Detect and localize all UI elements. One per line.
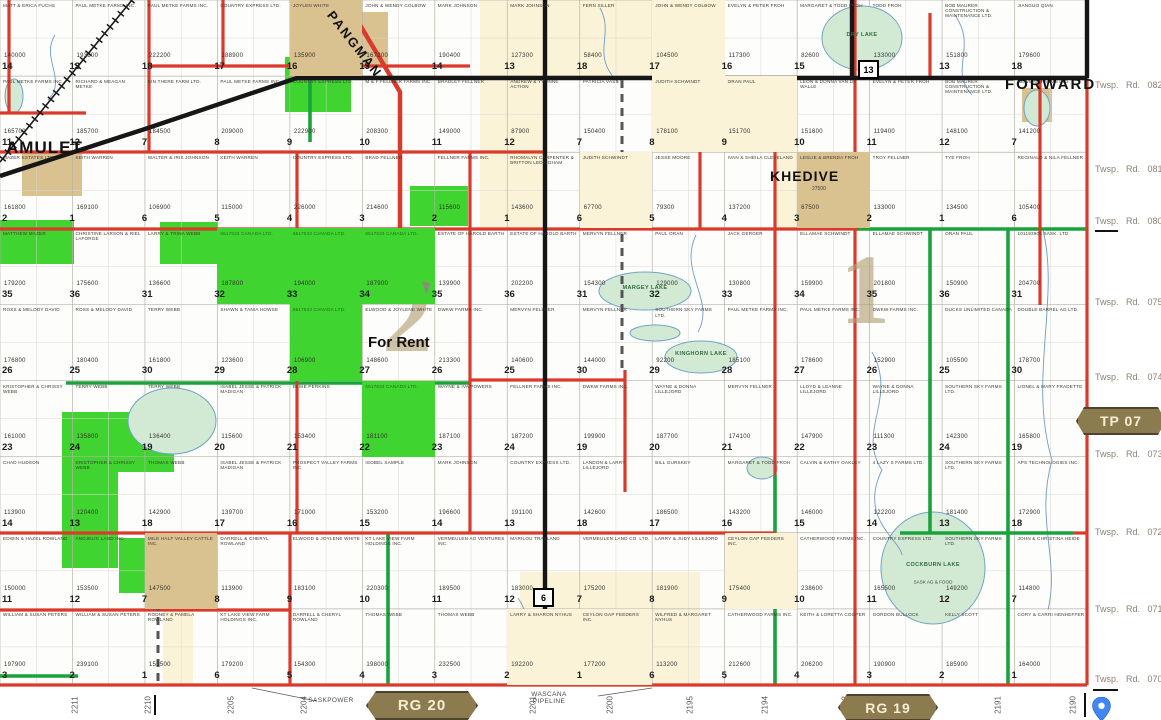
parcel-owner: TERRY WEBB <box>72 381 144 389</box>
parcel-value: 153400 <box>294 434 316 440</box>
parcel-value: 226000 <box>294 205 316 211</box>
parcel-owner: DOUBLE BARREL AG LTD. <box>1015 304 1087 312</box>
section-number: 16 <box>722 61 733 72</box>
parcel: TERRY WEBB135800 <box>72 381 144 457</box>
parcel: DARRELL & CHERYL ROWLAND154300 <box>290 609 362 685</box>
section-number: 27 <box>794 365 805 376</box>
parcel-value: 165800 <box>1019 434 1041 440</box>
section-number: 1 <box>69 213 74 224</box>
section-number: 12 <box>939 594 950 605</box>
parcel-value: 171000 <box>294 510 316 516</box>
parcel: PAUL METKE FARMS INC.209000 <box>217 76 289 152</box>
section-number: 1 <box>577 670 582 681</box>
parcel-owner: CHRISTINE LARSON & RIEL LAFORGE <box>72 228 144 241</box>
section-number: 2 <box>867 213 872 224</box>
parcel-owner: PAUL METKE FARMS INC. <box>217 76 289 84</box>
parcel-value: 176800 <box>4 358 26 364</box>
parcel-value: 222900 <box>294 129 316 135</box>
parcel-owner: DWKW FARMS INC. <box>580 381 652 389</box>
parcel-value: 151700 <box>729 129 751 135</box>
section-number: 11 <box>2 594 12 605</box>
parcel: BRAD FELLNER214600 <box>362 152 434 228</box>
section-number: 35 <box>2 289 13 300</box>
section-number: 13 <box>504 518 515 529</box>
parcel: ORAN PAUL150900 <box>942 228 1014 304</box>
parcel-owner: ESTATE OF HAROLD BARTH <box>507 228 579 236</box>
parcel-value: 161000 <box>4 434 26 440</box>
highway-13-shield: 13 <box>858 60 879 79</box>
parcel-owner: DUCKS UNLIMITED CANADA <box>942 304 1014 312</box>
parcel: DWKW FARMS INC.213300 <box>435 304 507 380</box>
parcel: COUNTRY EXPRESS LTD.165500 <box>870 533 942 609</box>
section-number: 9 <box>287 594 292 605</box>
section-number: 35 <box>867 289 878 300</box>
lake-label: KINGHORN LAKE <box>675 351 727 357</box>
section-number: 19 <box>577 442 588 453</box>
parcel-value: 105500 <box>946 358 968 364</box>
parcel: WILLIAM & SUSAN PETERS239100 <box>72 609 144 685</box>
parcel-owner: WAYNE & DONNA LILLEJORD <box>652 381 724 394</box>
parcel-value: 212600 <box>729 662 751 668</box>
parcel-value: 158500 <box>149 662 171 668</box>
parcel-owner: BOB MAURER CONSTRUCTION & MAINTENANCE LT… <box>942 76 1014 94</box>
parcel: CATHERWOOD FARMS INC.238600 <box>797 533 869 609</box>
range-road-number: 2205 <box>227 696 236 714</box>
township-road-label: Twsp. Rd. 082 <box>1095 80 1161 90</box>
parcel-value: 119400 <box>874 129 895 135</box>
parcel-value: 139900 <box>439 281 461 287</box>
parcel-value: 178600 <box>801 358 823 364</box>
section-number: 36 <box>504 289 515 300</box>
parcel-owner: COUNTRY EXPRESS LTD. <box>507 457 579 465</box>
section-number: 18 <box>142 518 153 529</box>
parcel-value: 130800 <box>729 281 751 287</box>
parcel-owner: LANDON & LARRY LILLEJORD <box>580 457 652 470</box>
parcel-value: 149200 <box>946 586 968 592</box>
parcel-owner: FERN SILLER <box>580 0 652 8</box>
parcel-value: 133000 <box>874 53 896 59</box>
parcel-value: 161800 <box>149 358 171 364</box>
section-number: 10 <box>794 594 805 605</box>
section-number: 25 <box>69 365 80 376</box>
section-number: 30 <box>577 365 588 376</box>
parcel-owner: MARK JOHNSON <box>435 0 507 8</box>
parcel-value: 142600 <box>584 510 606 516</box>
parcel-value: 190900 <box>874 662 896 668</box>
section-number: 6 <box>214 670 219 681</box>
parcel: SOUTHERN SKY FARMS LTD.181400 <box>942 457 1014 533</box>
parcel-value: 184500 <box>149 129 171 135</box>
parcel-owner: MARK JOHNSON <box>507 0 579 8</box>
parcel-value: 165500 <box>874 586 896 592</box>
parcel-value: 151600 <box>801 129 823 135</box>
section-number: 3 <box>794 213 799 224</box>
parcel-owner: ELLAMAE SCHWINDT <box>797 228 869 236</box>
parcel-owner: KEITH & LORETTA COOPER <box>797 609 869 617</box>
parcel-value: 181900 <box>656 586 678 592</box>
parcel-owner: ISABEL JESSE & PATRICK MADIGAN <box>217 457 289 470</box>
parcel-owner: CALVIN & KATHY OAKLEY <box>797 457 869 465</box>
parcel-value: 185700 <box>76 129 98 135</box>
parcel: DUCKS UNLIMITED CANADA105500 <box>942 304 1014 380</box>
parcel-value: 181100 <box>366 434 387 440</box>
section-number: 4 <box>359 670 364 681</box>
parcel-owner: BRADLEY FELLNER <box>435 76 507 84</box>
parcel-value: 135900 <box>294 53 316 59</box>
parcel: MERVYN FELLNER174100 <box>725 381 797 457</box>
section-number: 36 <box>69 289 80 300</box>
section-number: 13 <box>939 518 950 529</box>
parcel: LESLIE & BRENDA FROH67500 <box>797 152 869 228</box>
parcel: TERRY WEBB161800 <box>145 304 217 380</box>
parcel-owner: MERVYN FELLNER <box>580 228 652 236</box>
township-road-label: Twsp. Rd. 071 <box>1095 604 1161 614</box>
parcel-value: 192200 <box>511 662 533 668</box>
section-number: 34 <box>359 289 370 300</box>
parcel-owner: ROSS & MELODY DAVID <box>0 304 72 312</box>
parcel-value: 148100 <box>946 129 968 135</box>
parcel-owner: RHOMALYN CARPENTER & BRITTON LEDINGHAM <box>507 152 579 165</box>
section-number: 5 <box>214 213 219 224</box>
parcel: MERVYN FELLNER154300 <box>580 228 652 304</box>
parcel-owner: PAUL METKE FARMS INC. <box>72 0 144 8</box>
parcel-owner: PAUL METKE FARMS INC. <box>0 76 72 84</box>
parcel-owner: LESLIE & BRENDA FROH <box>797 152 869 160</box>
parcel: RICHARD & MEAGAN METKE185700 <box>72 76 144 152</box>
parcel-owner: WILLIAM & SUSAN PETERS <box>0 609 72 617</box>
parcel-owner: 6517633 CANADA LTD. <box>290 304 362 312</box>
parcel-owner: BOB MAURER CONSTRUCTION & MAINTENANCE LT… <box>942 0 1014 18</box>
parcel-owner: THOMAS WEBB <box>435 609 507 617</box>
parcel: ELLAMAE SCHWINDT201800 <box>870 228 942 304</box>
parcel-value: 143200 <box>729 510 751 516</box>
section-number: 1 <box>142 670 147 681</box>
parcel-value: 134500 <box>946 205 968 211</box>
parcel-owner: GORDON BULLOCK <box>870 609 942 617</box>
parcel-owner: PAUL ORAN <box>652 228 724 236</box>
parcel-value: 185900 <box>946 662 968 668</box>
parcel: ESTATE OF HAROLD BARTH139900 <box>435 228 507 304</box>
parcel: CEYLON GAP FEEDERS INC.175400 <box>725 533 797 609</box>
parcel-owner: SHAWN & TANIA HOWSE <box>217 304 289 312</box>
section-number: 15 <box>359 518 370 529</box>
range-road-20-shield: RG 20 <box>366 691 478 720</box>
parcel-owner: PAUL METKE FARMS INC. <box>145 0 217 8</box>
parcel-value: 206200 <box>801 662 823 668</box>
parcel-value: 175200 <box>584 586 606 592</box>
parcel: VERMEULEN LAND CO. LTD.175200 <box>580 533 652 609</box>
parcel-value: 198000 <box>366 662 388 668</box>
town-label-forward: FORWARD <box>1005 76 1096 93</box>
range-road-number: 2200 <box>606 696 615 714</box>
parcel-owner: DARRELL & CHERYL ROWLAND <box>290 609 362 622</box>
section-number: 29 <box>214 365 225 376</box>
parcel-value: 222200 <box>149 53 171 59</box>
parcel-value: 87900 <box>511 129 529 135</box>
range-road-19-shield: RG 19 <box>838 694 938 720</box>
parcel-value: 179600 <box>1019 53 1041 59</box>
parcel: SOUTHERN SKY FARMS LTD.142300 <box>942 381 1014 457</box>
section-number: 21 <box>722 442 733 453</box>
parcel-value: 143600 <box>511 205 533 211</box>
parcel: COUNTRY EXPRESS LTD.188900 <box>217 0 289 76</box>
parcel: BOB MAURER CONSTRUCTION & MAINTENANCE LT… <box>942 76 1014 152</box>
parcel-value: 172900 <box>1019 510 1041 516</box>
section-number: 18 <box>142 61 153 72</box>
parcel-value: 183100 <box>294 586 316 592</box>
parcel: ELWOOD & JOYLENE WHITE183100 <box>290 533 362 609</box>
lake-sublabel: SASK AG & FOOD <box>914 580 953 585</box>
parcel-owner: CEYLON GAP FEEDERS INC. <box>725 533 797 546</box>
section-number: 27 <box>359 365 370 376</box>
parcel: REGINALD & NILA FELLNER105400 <box>1015 152 1087 228</box>
parcel-owner: COUNTRY EXPRESS LTD. <box>290 152 362 160</box>
parcel-value: 161800 <box>4 205 26 211</box>
parcel: CORY & CARRI HENHEFFER164000 <box>1015 609 1087 685</box>
parcel-owner: FELLNER FARMS INC. <box>435 152 507 160</box>
parcel: SHAWN & TANIA HOWSE123600 <box>217 304 289 380</box>
parcel-value: 187100 <box>439 434 461 440</box>
section-number: 8 <box>214 137 219 148</box>
section-number: 26 <box>432 365 443 376</box>
parcel: PAUL METKE FARMS INC.222200 <box>145 0 217 76</box>
parcel-owner: MATT & ERICA FUCHS <box>0 0 72 8</box>
parcel: CALVIN & KATHY OAKLEY146000 <box>797 457 869 533</box>
parcel-value: 141200 <box>1019 129 1041 135</box>
parcel-value: 111300 <box>874 434 895 440</box>
parcel: ANDJELIC LAND INC.153500 <box>72 533 144 609</box>
parcel-owner: ROSS & MELODY DAVID <box>72 304 144 312</box>
parcel-value: 194000 <box>294 281 316 287</box>
parcel: 6517633 CANADA LTD.181100 <box>362 381 434 457</box>
section-number: 13 <box>69 518 80 529</box>
parcel: SOUTHERN SKY FARMS LTD.149200 <box>942 533 1014 609</box>
parcel: ISOBEL SAMPLE153200 <box>362 457 434 533</box>
parcel-value: 113900 <box>4 510 25 516</box>
parcel-value: 114800 <box>1019 586 1040 592</box>
parcel: CHRISTINE LARSON & RIEL LAFORGE175600 <box>72 228 144 304</box>
parcel-value: 175400 <box>729 586 751 592</box>
section-number: 5 <box>722 670 727 681</box>
parcel: MARGARET & TODD FROH143200 <box>725 457 797 533</box>
parcel-owner: JIANGUO QIAN <box>1015 0 1087 8</box>
parcel: APS TECHNOLOGIES INC.172900 <box>1015 457 1087 533</box>
parcel: RHOMALYN CARPENTER & BRITTON LEDINGHAM14… <box>507 152 579 228</box>
parcel-owner: SOUTHERN SKY FARMS LTD. <box>942 381 1014 394</box>
parcel-owner: TODD FROH <box>870 0 942 8</box>
parcel-owner: VERMEULEN AG VENTURES INC. <box>435 533 507 546</box>
parcel-value: 179200 <box>221 662 243 668</box>
section-number: 18 <box>1012 518 1023 529</box>
parcel-value: 142900 <box>149 510 171 516</box>
township-road-label: Twsp. Rd. 080 <box>1095 216 1161 226</box>
section-number: 24 <box>939 442 950 453</box>
parcel: DWKW FARMS INC.199900 <box>580 381 652 457</box>
section-number: 1 <box>939 213 944 224</box>
section-number: 25 <box>939 365 950 376</box>
section-number: 33 <box>722 289 733 300</box>
parcel-owner: KRISTOPHER & CHRISSY WEBB <box>72 457 144 470</box>
section-number: 9 <box>287 137 292 148</box>
parcel: LLOYD & LEANNE LILLEJORD147900 <box>797 381 869 457</box>
section-number: 22 <box>794 442 805 453</box>
section-number: 12 <box>504 594 515 605</box>
parcel-value: 105400 <box>1019 205 1041 211</box>
section-number: 8 <box>214 594 219 605</box>
range-road-number: 2211 <box>71 696 80 713</box>
parcel-owner: KELLY SCOTT <box>942 609 1014 617</box>
parcel: MARK JOHNSON190400 <box>435 0 507 76</box>
parcel: MERVYN FELLNER144000 <box>580 304 652 380</box>
parcel-value: 169100 <box>76 205 98 211</box>
section-number: 11 <box>432 137 442 148</box>
parcel-value: 123600 <box>221 358 243 364</box>
parcel-value: 153200 <box>366 510 388 516</box>
parcel-value: 133000 <box>874 205 896 211</box>
section-number: 17 <box>649 518 660 529</box>
parcel-value: 151800 <box>946 53 968 59</box>
parcel: COUNTRY EXPRESS LTD.191100 <box>507 457 579 533</box>
parcel: ISABEL JESSE & PATRICK MADIGAN115600 <box>217 381 289 457</box>
parcel: KELLY SCOTT185900 <box>942 609 1014 685</box>
section-number: 30 <box>1012 365 1023 376</box>
parcel: JESSE MOORE79300 <box>652 152 724 228</box>
parcel: 6517633 CANADA LTD.106900 <box>290 304 362 380</box>
for-rent-annotation: For Rent <box>368 334 430 351</box>
parcel-owner: ISOBEL SAMPLE <box>362 457 434 465</box>
parcel-value: 120400 <box>76 510 98 516</box>
parcel-value: 146000 <box>801 510 823 516</box>
parcel: 6517633 CANADA LTD.187800 <box>217 228 289 304</box>
township-road-label: Twsp. Rd. 075 <box>1095 297 1161 307</box>
township-road-label: Twsp. Rd. 074 <box>1095 372 1161 382</box>
parcel-value: 154300 <box>584 281 606 287</box>
parcel: GORDON BULLOCK190900 <box>870 609 942 685</box>
parcel-value: 190400 <box>439 53 461 59</box>
parcel-value: 140000 <box>4 53 26 59</box>
parcel-owner: 6517633 CANADA LTD. <box>362 381 434 389</box>
parcel-owner: TERRY WEBB <box>145 304 217 312</box>
range-road-number: 2194 <box>761 696 770 714</box>
range-road-number: 2190 <box>1069 696 1078 714</box>
parcel-owner: PAUL METKE FARMS INC. <box>725 304 797 312</box>
parcel-owner: ANDJELIC LAND INC. <box>72 533 144 541</box>
parcel: IVAN & SHEILA CLEVELAND137200 <box>725 152 797 228</box>
parcel: EVELYN & PETER FROH117300 <box>725 0 797 76</box>
parcel-owner: JOYLEN WHITE <box>290 0 362 8</box>
parcel-owner: LARRY & SHARON NYHUS <box>507 609 579 617</box>
parcel-owner: COUNTRY EXPRESS LTD. <box>217 0 289 8</box>
parcel-value: 136600 <box>149 281 171 287</box>
section-number: 3 <box>2 670 7 681</box>
parcel-owner: TYE FROH <box>942 152 1014 160</box>
section-number: 35 <box>432 289 443 300</box>
parcel-owner: BILL GURSKEY <box>652 457 724 465</box>
parcel: KEITH WARREN115000 <box>217 152 289 228</box>
parcel: TROY FELLNER133000 <box>870 152 942 228</box>
parcel-owner: THOMAS WEBB <box>362 609 434 617</box>
parcel: ELSIE PERKINS153400 <box>290 381 362 457</box>
parcel-owner: PROSPECT VALLEY FARMS INC. <box>290 457 362 470</box>
parcel-owner: MERVYN FELLNER <box>507 304 579 312</box>
plat-map-screenshot: AMULET KHEDIVE FORWARD PANGMAN 27500 For… <box>0 0 1161 720</box>
parcel: THOMAS WEBB232500 <box>435 609 507 685</box>
parcel-owner: 4 LAZY S FARMS LTD. <box>870 457 942 465</box>
section-number: 15 <box>794 518 805 529</box>
section-number: 1 <box>504 213 509 224</box>
parcel-value: 187200 <box>511 434 533 440</box>
parcel: JOHN & WENDY COLBOW104500 <box>652 0 724 76</box>
parcel-value: 178100 <box>656 129 678 135</box>
section-number: 14 <box>432 518 443 529</box>
parcel: PROSPECT VALLEY FARMS INC.171000 <box>290 457 362 533</box>
section-number: 13 <box>939 61 950 72</box>
parcel: WAYNE & DONNA LILLEJORD187700 <box>652 381 724 457</box>
range-road-number: 2191 <box>994 696 1003 714</box>
parcel-value: 150000 <box>4 586 26 592</box>
section-number: 10 <box>794 137 805 148</box>
map-pin-marker[interactable] <box>1092 697 1111 720</box>
parcel-owner: MARK JOHNSON <box>435 457 507 465</box>
section-number: 7 <box>142 137 147 148</box>
parcel-value: 183000 <box>511 586 533 592</box>
section-number: 6 <box>577 213 582 224</box>
parcel: MILE HALF VALLEY CATTLE INC.147500 <box>145 533 217 609</box>
parcel-owner: ELWOOD & JOYLENE WHITE <box>290 533 362 541</box>
parcel-owner: LLOYD & LEANNE LILLEJORD <box>797 381 869 394</box>
parcel-owner: BIN THERE FARM LTD. <box>145 76 217 84</box>
parcel: JIANGUO QIAN179600 <box>1015 0 1087 76</box>
parcel: ROSS & MELODY DAVID180400 <box>72 304 144 380</box>
parcel-value: 150400 <box>584 129 606 135</box>
parcel-owner: WILFRED & MARGARET NYHUS <box>652 609 724 622</box>
parcel: CEYLON GAP FEEDERS INC.177200 <box>580 609 652 685</box>
section-number: 21 <box>287 442 298 453</box>
parcel-owner: ELLAMAE SCHWINDT <box>870 228 942 236</box>
parcel-value: 152900 <box>874 358 896 364</box>
section-number: 18 <box>1012 61 1023 72</box>
section-number: 17 <box>649 61 660 72</box>
section-number: 14 <box>2 518 13 529</box>
parcel-owner: THOMAS WEBB <box>145 457 217 465</box>
parcel-value: 92200 <box>656 358 674 364</box>
section-number: 23 <box>432 442 443 453</box>
parcel-value: 186500 <box>656 510 678 516</box>
parcel-value: 142300 <box>946 434 968 440</box>
parcel: TERRY WEBB136400 <box>145 381 217 457</box>
parcel-owner: VERMEULEN LAND CO. LTD. <box>580 533 652 541</box>
parcel: COUNTRY EXPRESS LTD.222900 <box>290 76 362 152</box>
parcel: WILFRED & MARGARET NYHUS113200 <box>652 609 724 685</box>
parcel-owner: COUNTRY EXPRESS LTD. <box>870 533 942 541</box>
parcel: FELLNER FARMS INC.115600 <box>435 152 507 228</box>
parcel-value: 153500 <box>76 586 98 592</box>
parcel-owner: CEYLON GAP FEEDERS INC. <box>580 609 652 622</box>
parcel-owner: WAYNE & IVA POWERS <box>435 381 507 389</box>
parcel: 101193906 SASK. LTD.204700 <box>1015 228 1087 304</box>
parcel: 4 LAZY S FARMS LTD.122200 <box>870 457 942 533</box>
parcel-owner: JESSE MOORE <box>652 152 724 160</box>
parcel: DARRELL & CHERYL ROWLAND113900 <box>217 533 289 609</box>
section-number: 12 <box>504 137 515 148</box>
section-number: 17 <box>214 518 225 529</box>
section-number: 34 <box>794 289 805 300</box>
parcel-value: 144000 <box>584 358 606 364</box>
section-number: 19 <box>142 442 153 453</box>
township-road-label: Twsp. Rd. 073 <box>1095 449 1161 459</box>
section-number: 14 <box>867 518 878 529</box>
parcel: WAYNE & IVA POWERS187100 <box>435 381 507 457</box>
